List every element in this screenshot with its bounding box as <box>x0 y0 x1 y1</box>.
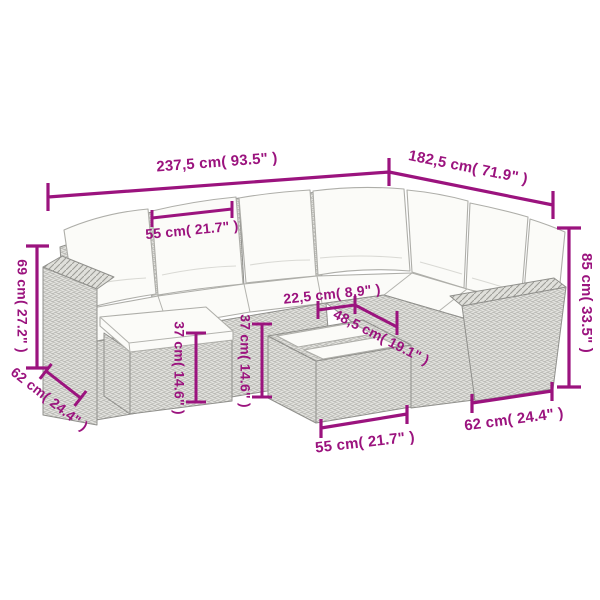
dim-right-base-depth-label: 62 cm( 24.4" ) <box>463 405 564 435</box>
dim-ottoman-height-label: 37 cm( 14.6" ) <box>171 321 187 415</box>
dim-top-depth-label: 182,5 cm( 71.9" ) <box>407 147 529 188</box>
dim-table-width-label: 55 cm( 21.7" ) <box>314 428 415 456</box>
sofa-set-illustration <box>43 187 566 425</box>
ottoman <box>100 307 233 414</box>
dim-left-height-label: 69 cm( 27.2" ) <box>14 259 30 353</box>
dim-table-height-label: 37 cm( 14.6" ) <box>237 314 253 408</box>
sofa-dimension-drawing: 237,5 cm( 93.5" ) 182,5 cm( 71.9" ) 55 c… <box>0 0 600 600</box>
dim-top-width-label: 237,5 cm( 93.5" ) <box>156 149 278 175</box>
product-dimension-diagram: 237,5 cm( 93.5" ) 182,5 cm( 71.9" ) 55 c… <box>0 0 600 600</box>
dim-total-height-label: 85 cm( 33.5" ) <box>578 253 595 353</box>
